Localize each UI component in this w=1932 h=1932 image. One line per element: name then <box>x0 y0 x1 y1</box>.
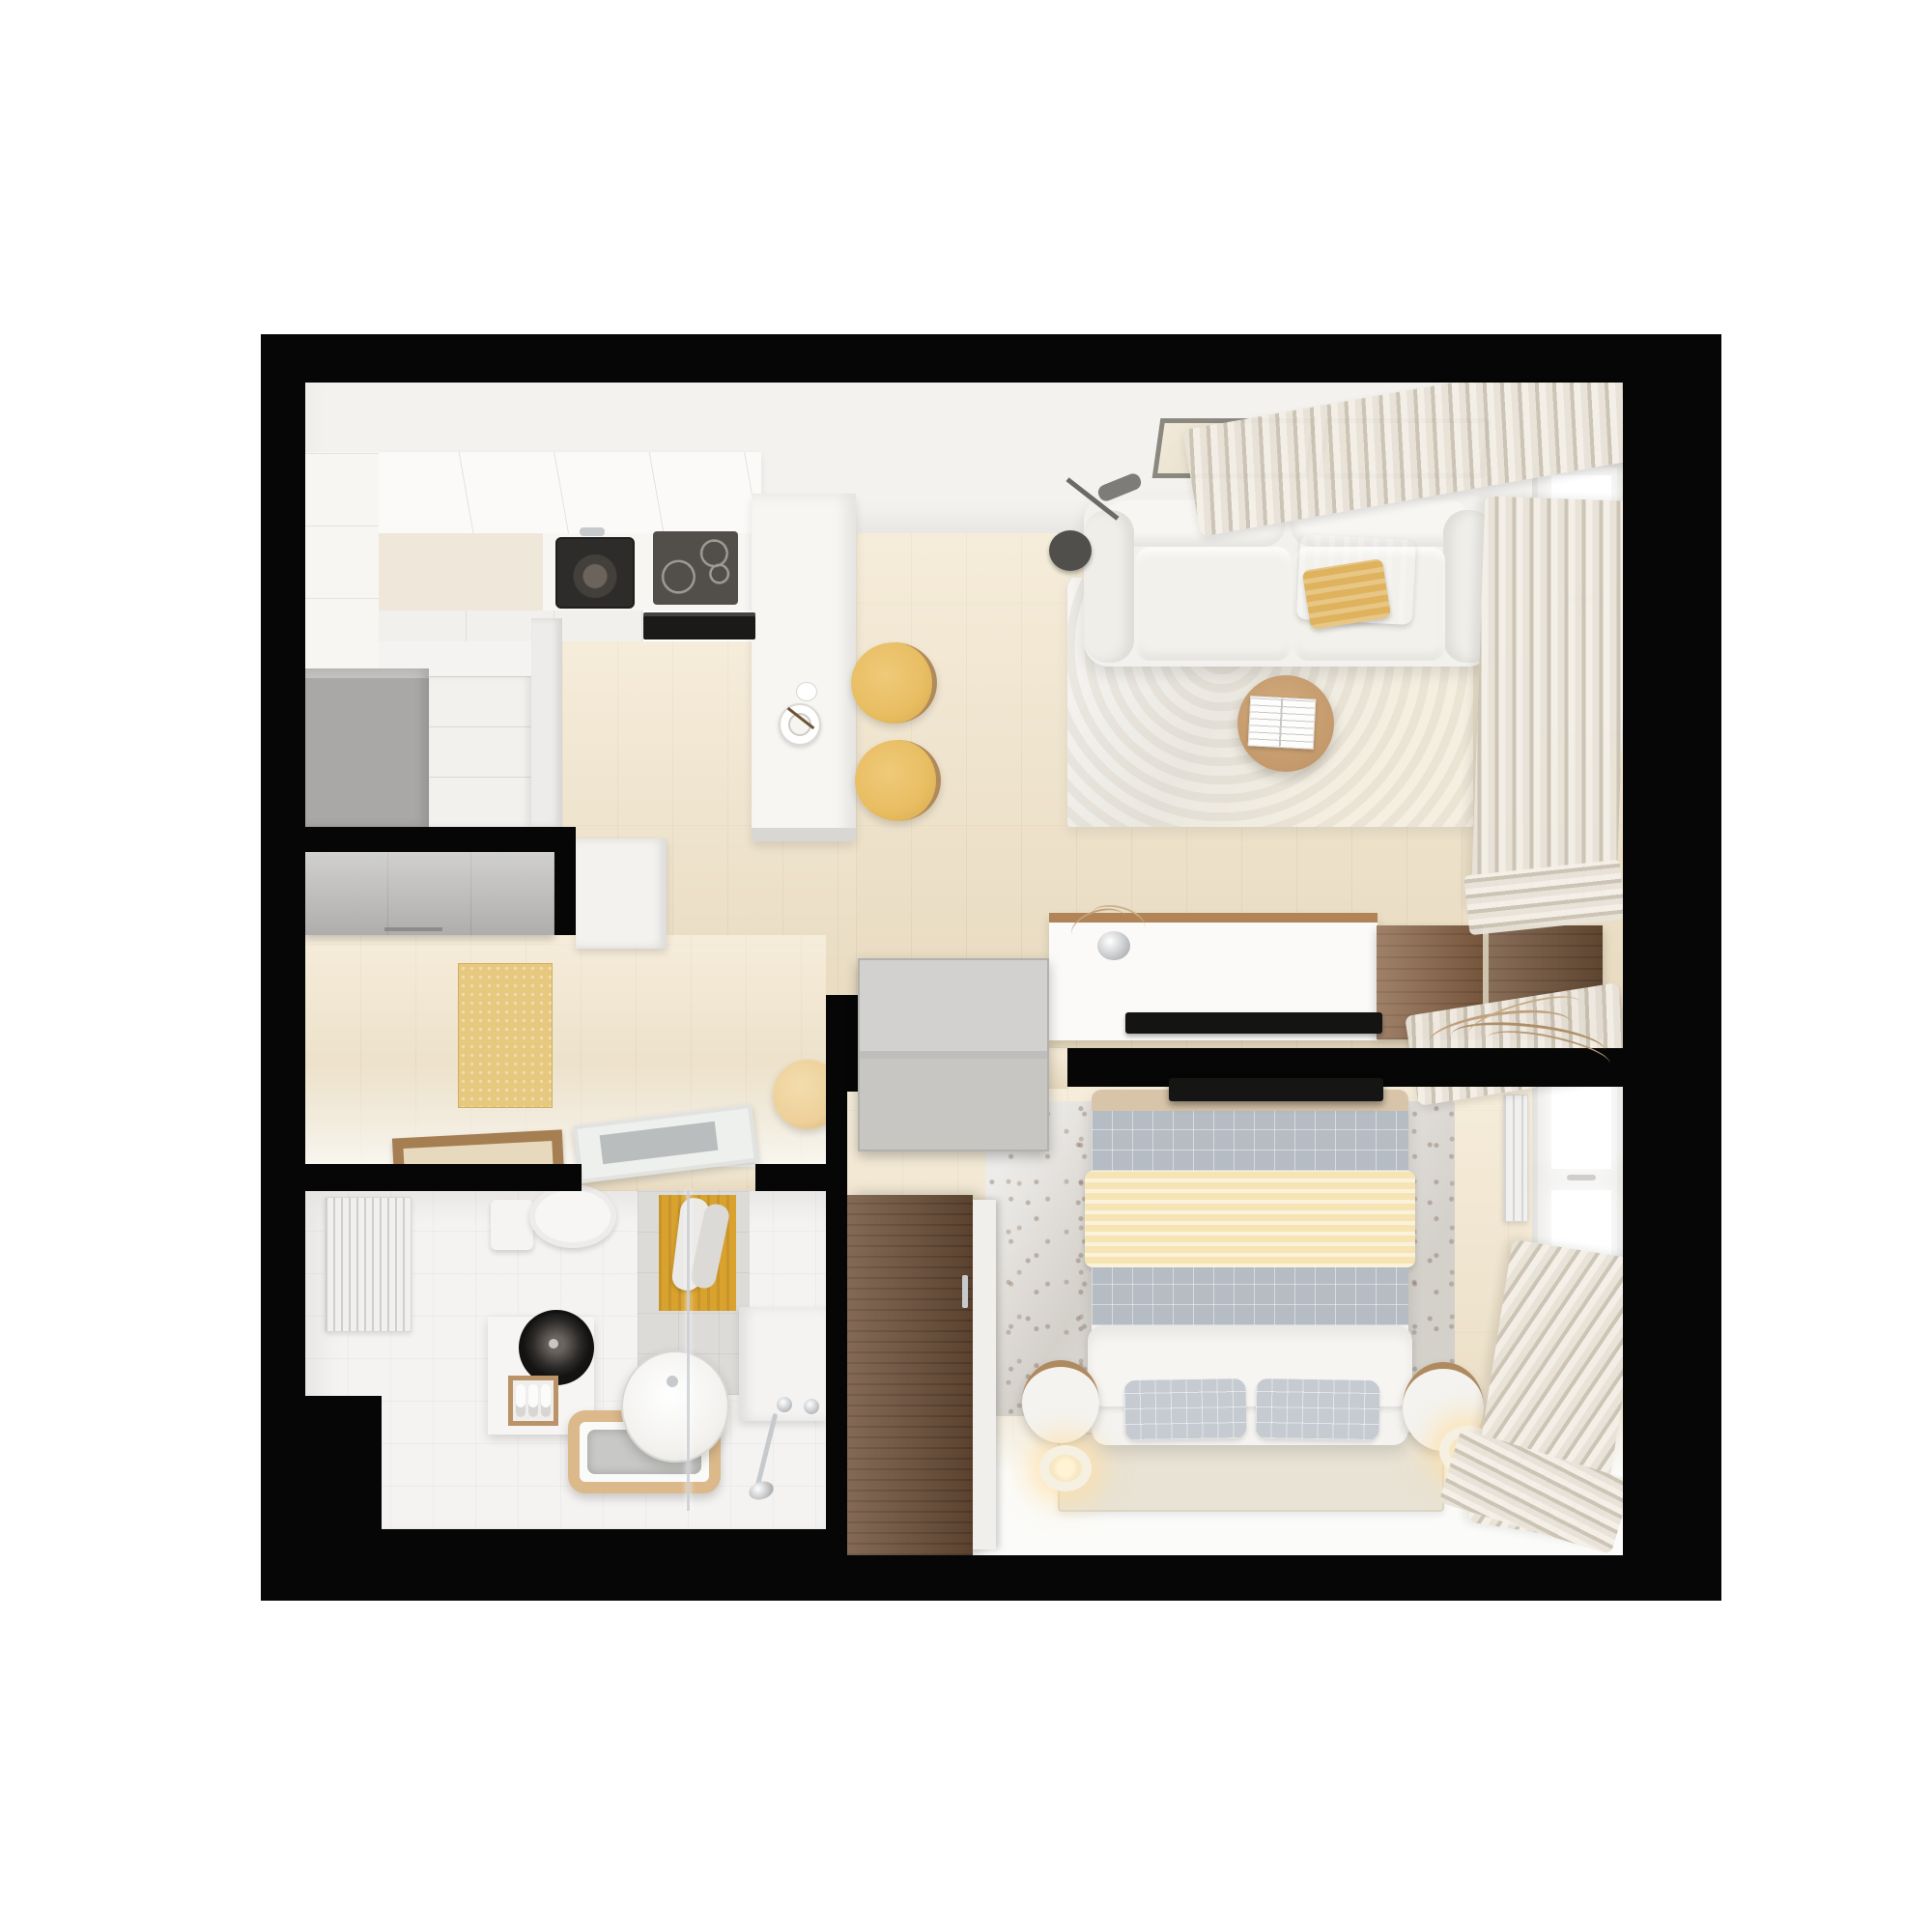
wall-bottom-bathroom <box>382 1529 845 1601</box>
wall-hall-stub-vertical <box>554 827 576 935</box>
kitchen-sink <box>555 537 635 609</box>
bedroom-open-door-leaf <box>858 958 1049 1151</box>
counter-peninsula <box>752 494 856 841</box>
dried-branch-decor <box>1428 985 1621 1072</box>
hall-white-cabinet <box>576 838 667 949</box>
closet-handle <box>384 927 442 931</box>
base-cabinet-fronts <box>379 611 643 641</box>
ring-lamp-left <box>1039 1445 1092 1492</box>
upper-cabinets <box>379 452 761 533</box>
bathroom-radiator <box>325 1197 412 1332</box>
bedroom-wall-tv <box>1169 1078 1383 1101</box>
sink-faucet-icon <box>580 527 605 536</box>
tall-cabinet-side <box>531 618 562 827</box>
floor-plan-canvas <box>0 0 1932 1932</box>
entry-closet <box>305 852 554 935</box>
peninsula-edge <box>752 828 856 841</box>
counter-backsplash <box>379 533 543 611</box>
wall-right <box>1623 334 1721 1601</box>
window-glass-top <box>1551 1072 1611 1169</box>
induction-cooktop <box>653 531 738 605</box>
rolled-towel <box>528 1384 538 1417</box>
freestanding-basin <box>621 1350 729 1463</box>
floor-lamp-base <box>1049 530 1092 571</box>
sink-drain-dot <box>549 1339 558 1349</box>
wall-left <box>261 334 305 1406</box>
pillow-left <box>1123 1378 1246 1440</box>
television <box>1125 1012 1382 1034</box>
drawer-unit <box>429 676 531 827</box>
wall-hall-stub <box>305 827 572 852</box>
built-in-oven <box>643 612 755 639</box>
basin-faucet-dot <box>667 1376 678 1387</box>
sofa-armrest-left <box>1084 510 1134 663</box>
pillow-right <box>1255 1378 1379 1440</box>
bar-stool-2 <box>855 740 941 821</box>
milk-jug <box>796 682 817 701</box>
toilet-bowl <box>529 1184 616 1248</box>
wall-top <box>261 334 1721 383</box>
double-bed <box>1092 1090 1408 1445</box>
toilet-tank <box>491 1200 533 1250</box>
shower-glass-screen <box>687 1190 690 1511</box>
open-book <box>1248 696 1317 749</box>
wall-bathroom-top-right <box>755 1164 826 1191</box>
bed-plaid-bottom <box>1092 1267 1408 1325</box>
yellow-throw-fold <box>1302 558 1392 630</box>
yellow-doormat <box>458 963 553 1108</box>
left-cabinet-column <box>305 452 379 670</box>
bed-cream-blanket <box>1085 1171 1415 1267</box>
living-curtain-side <box>1471 497 1631 915</box>
window-handle <box>1567 1175 1596 1180</box>
bed-plaid-top <box>1092 1111 1408 1171</box>
shower-handle-2 <box>804 1399 819 1414</box>
towel-niche <box>508 1376 558 1426</box>
bar-stool-1 <box>851 642 937 724</box>
wardrobe-open-door <box>973 1200 996 1549</box>
drum-nightstand-left <box>1022 1360 1099 1443</box>
rolled-towel <box>541 1384 551 1417</box>
wall-bottom-bedroom <box>826 1555 1721 1601</box>
wall-bathroom-top-left <box>305 1164 582 1191</box>
wall-notch-bottom-left <box>261 1396 382 1601</box>
rolled-towel <box>516 1384 526 1417</box>
bedroom-wardrobe <box>847 1195 973 1555</box>
gray-tall-unit <box>305 668 429 827</box>
shower-handle-1 <box>777 1397 792 1412</box>
sofa-seat-left <box>1136 547 1291 661</box>
bedroom-radiator <box>1503 1094 1528 1222</box>
wall-bath-bedroom <box>826 1087 847 1560</box>
wardrobe-handle <box>962 1275 968 1308</box>
